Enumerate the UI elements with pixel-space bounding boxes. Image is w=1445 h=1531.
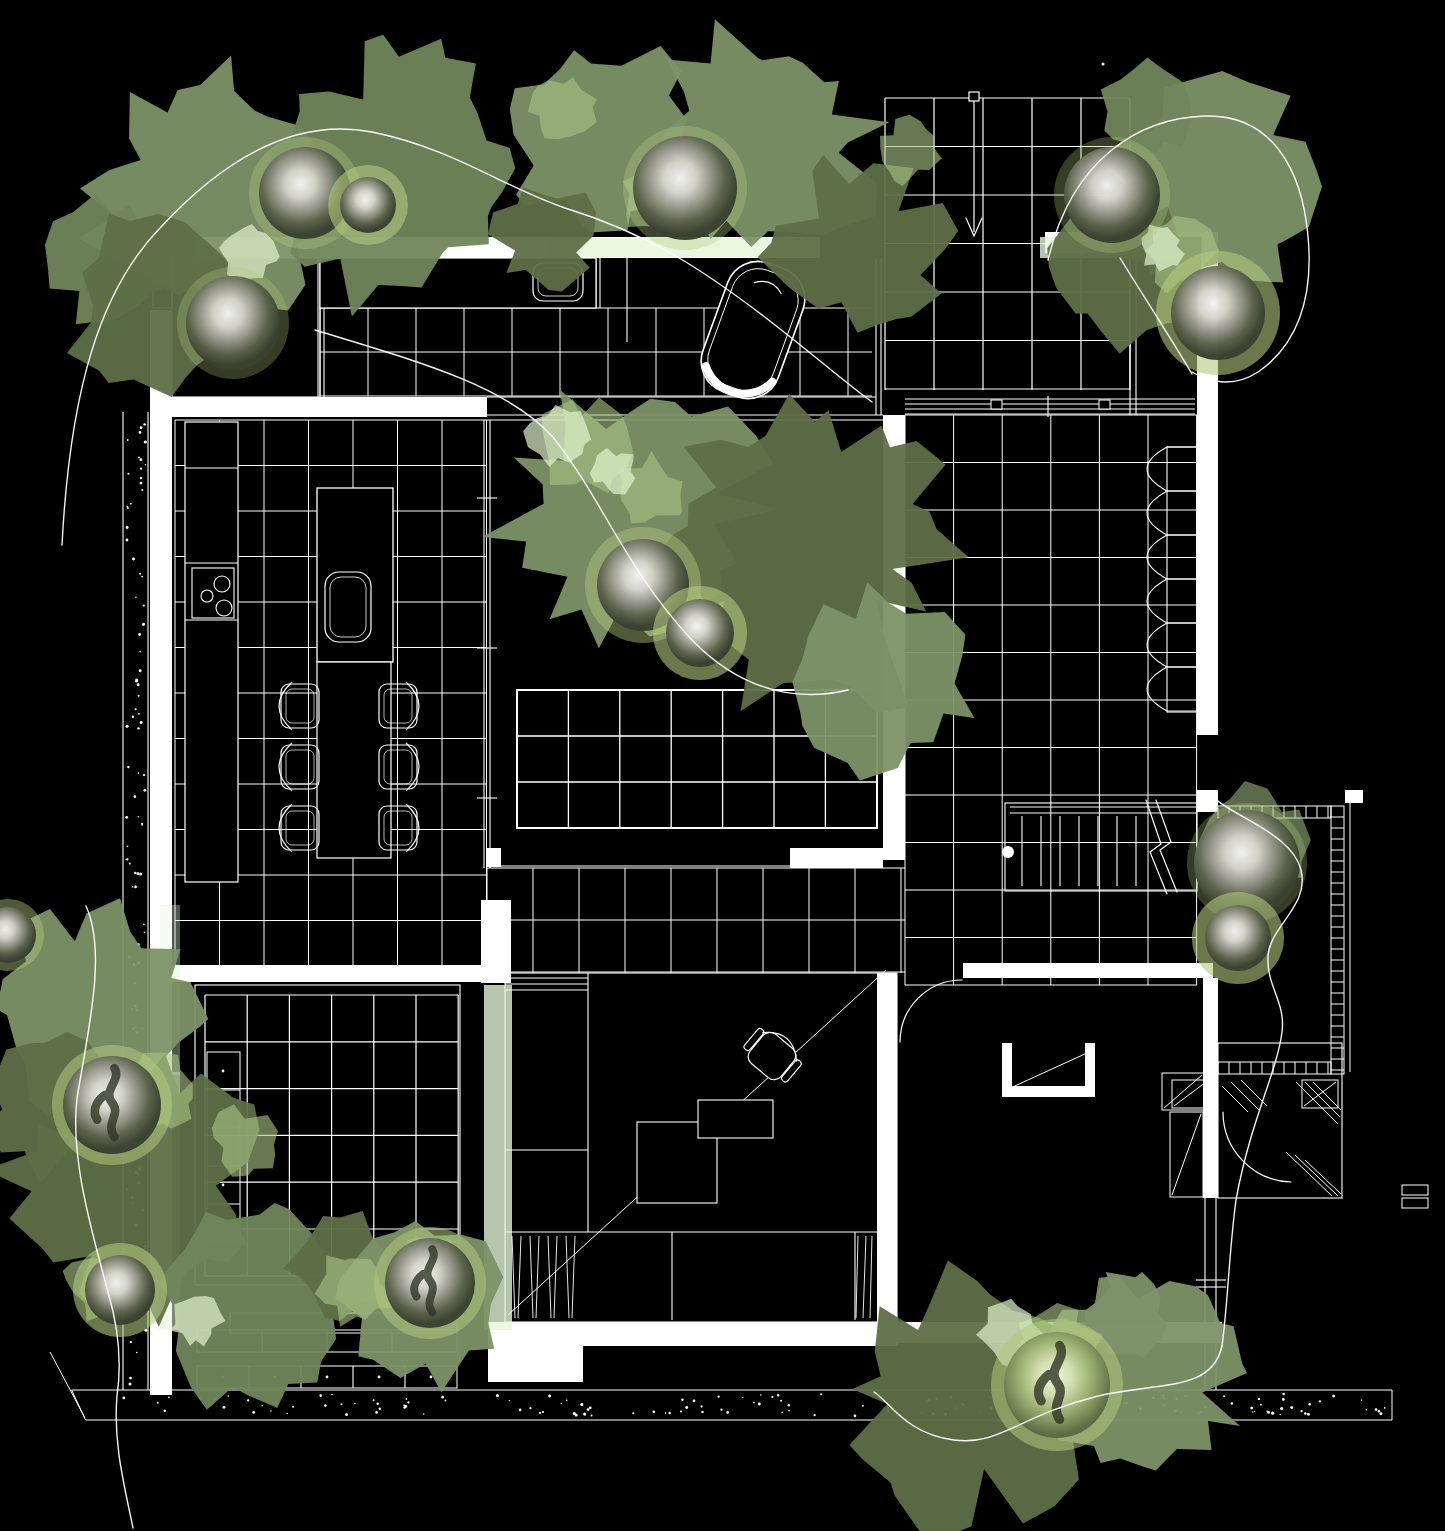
shrub-sphere [1054, 137, 1170, 253]
shrub-sphere [623, 126, 747, 250]
wall-living-patio [185, 965, 510, 982]
kitchen-island [317, 488, 393, 662]
wall-hall-top [963, 963, 1213, 978]
hall-door-arc [900, 980, 962, 1042]
alcove-diagonal [1006, 1053, 1087, 1090]
floor-plan-viewport [0, 0, 1445, 1531]
wall-courtyard-stub-left [487, 848, 501, 867]
wall-bathroom-bottom [172, 397, 487, 417]
floor-plan-canvas[interactable] [0, 0, 1445, 1531]
wall-alcove-bottom [1002, 1086, 1095, 1097]
track-handle [991, 400, 1002, 409]
wall-studio-right [877, 973, 897, 1323]
tree-canopy [792, 583, 974, 781]
wall-courtyard-stub-right [790, 848, 883, 868]
dining-chair [279, 804, 319, 852]
balcony-detail-b [1402, 1198, 1428, 1208]
shrub-sphere [52, 1045, 172, 1165]
balcony-detail-a [1402, 1185, 1428, 1195]
closet-shaft [1162, 1073, 1204, 1197]
hatch-square [1172, 1080, 1208, 1108]
deck-walkway-right [1331, 806, 1344, 1074]
stray-dot [1102, 63, 1105, 66]
shrub-sphere [328, 165, 408, 245]
studio-hatch-left [512, 1236, 575, 1318]
bath2-door-arc [1223, 1112, 1291, 1182]
gravel-band-slant [50, 1352, 85, 1418]
shrub-sphere [177, 267, 289, 379]
wall-studio-bottom [488, 1322, 898, 1346]
shrub-sphere [653, 586, 747, 680]
office-chair [738, 1020, 808, 1088]
wall-hall-right [1203, 978, 1218, 1198]
shrub-sphere [1192, 892, 1284, 984]
shrub-sphere [991, 1319, 1123, 1451]
studio-desk [698, 1100, 773, 1138]
shrub-sphere [73, 1243, 167, 1337]
wall-right-stub [1197, 790, 1218, 812]
kitchen-counter [185, 422, 238, 882]
bath2-room-outline [1218, 1043, 1342, 1198]
shrub-sphere [374, 1227, 486, 1339]
wall-studio-bottom-2 [488, 1346, 583, 1382]
sliding-door-track [905, 396, 1195, 417]
studio-hatch-right [856, 1236, 872, 1318]
dining-table [317, 662, 391, 858]
stray-dot [892, 1311, 894, 1313]
track-handle [1099, 400, 1110, 409]
living-floor-grid [487, 868, 905, 973]
wall-balcony-stub [1345, 790, 1363, 803]
bifold-doors [1147, 447, 1197, 711]
wall-living-studio-stub [481, 900, 511, 983]
shrub-sphere [1156, 251, 1280, 375]
dining-chair [279, 682, 319, 730]
entry-arrow [966, 92, 982, 236]
